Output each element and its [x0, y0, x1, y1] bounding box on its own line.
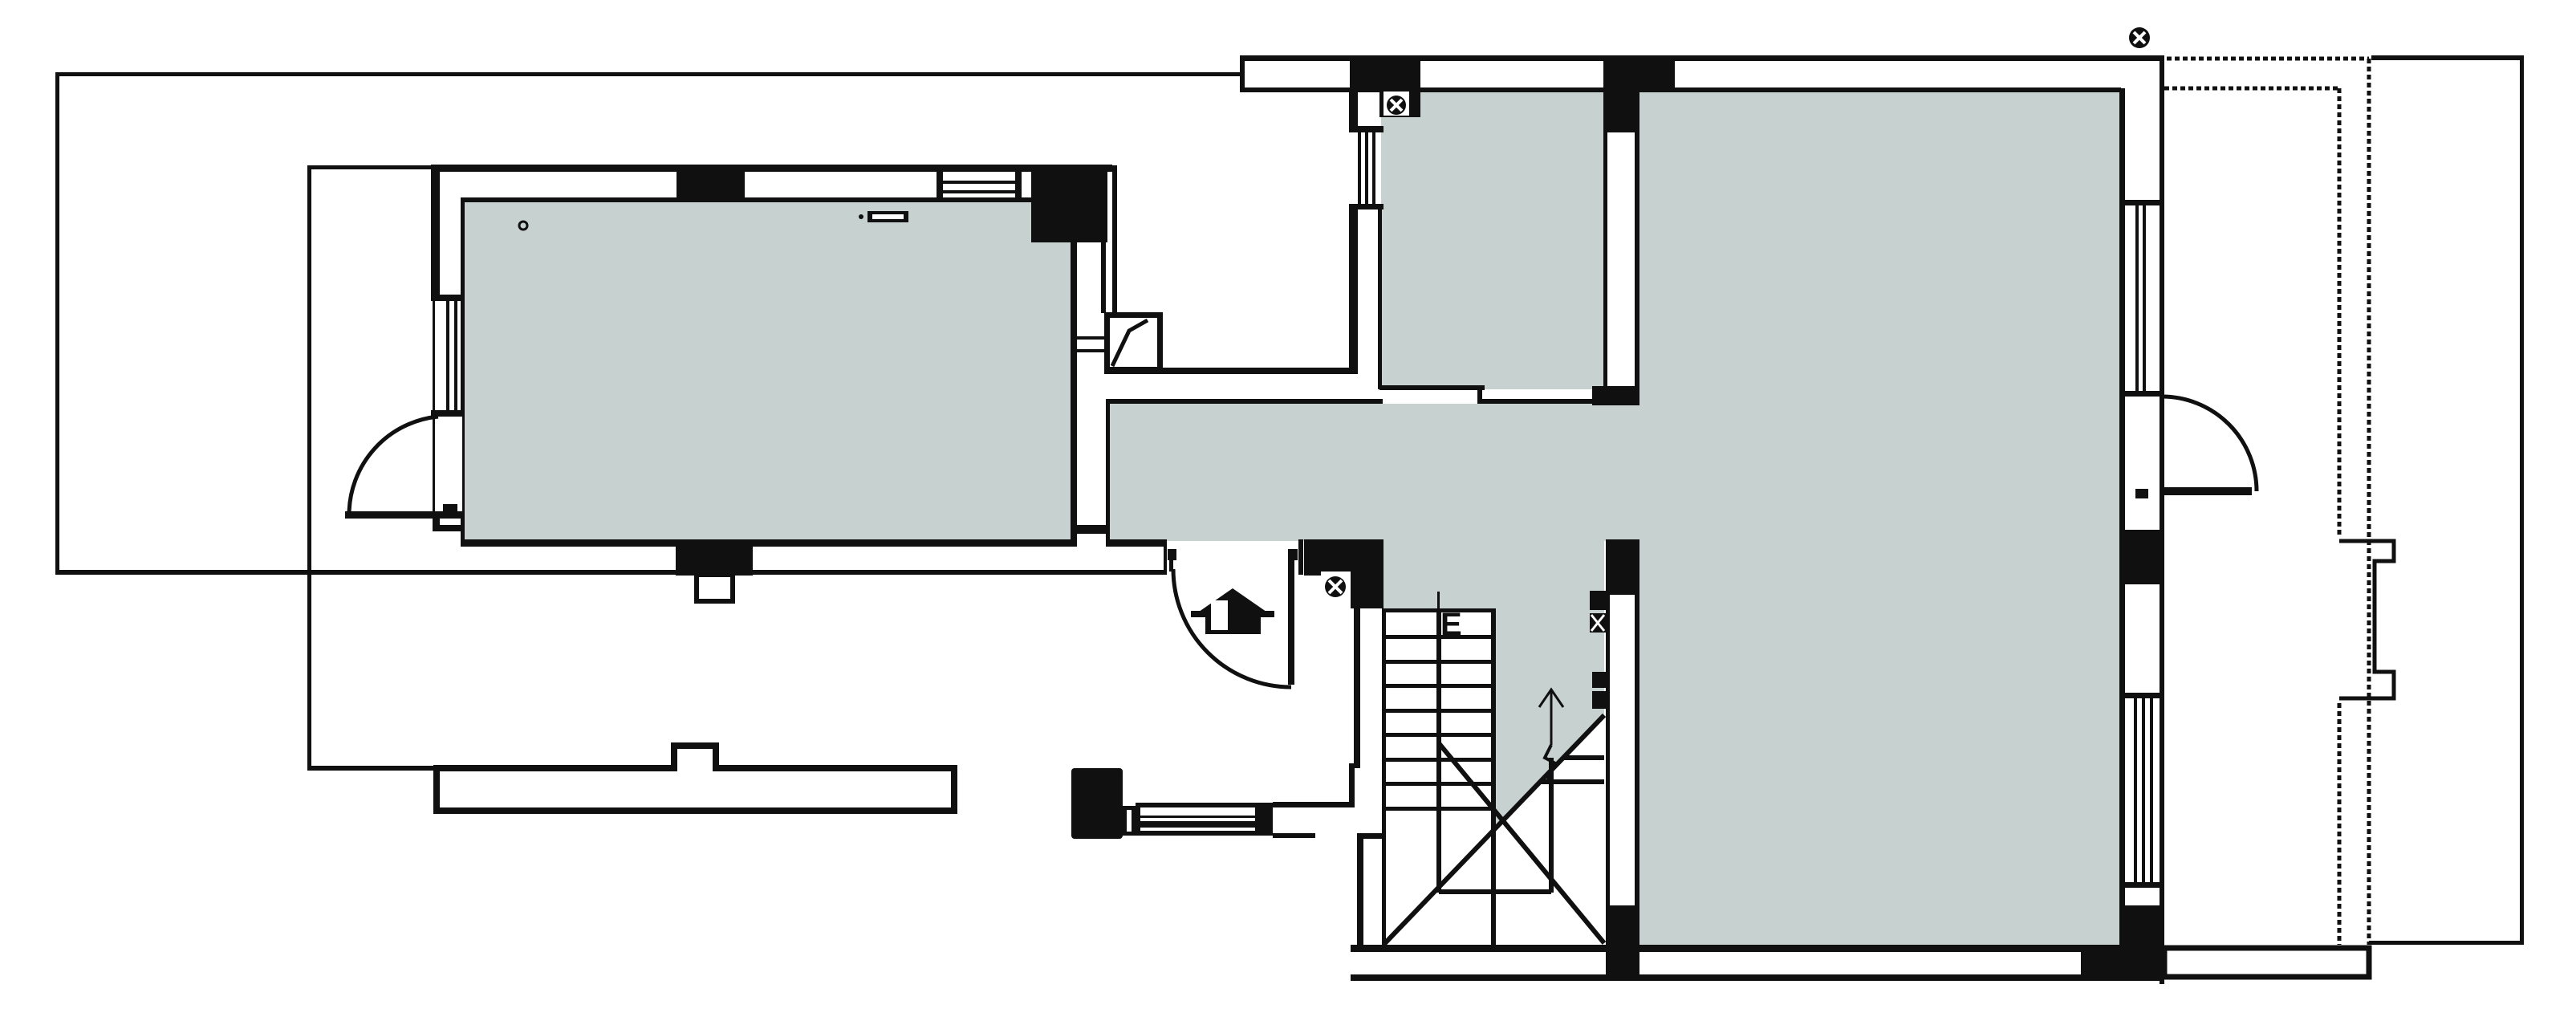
svg-text:E: E — [1440, 607, 1462, 642]
